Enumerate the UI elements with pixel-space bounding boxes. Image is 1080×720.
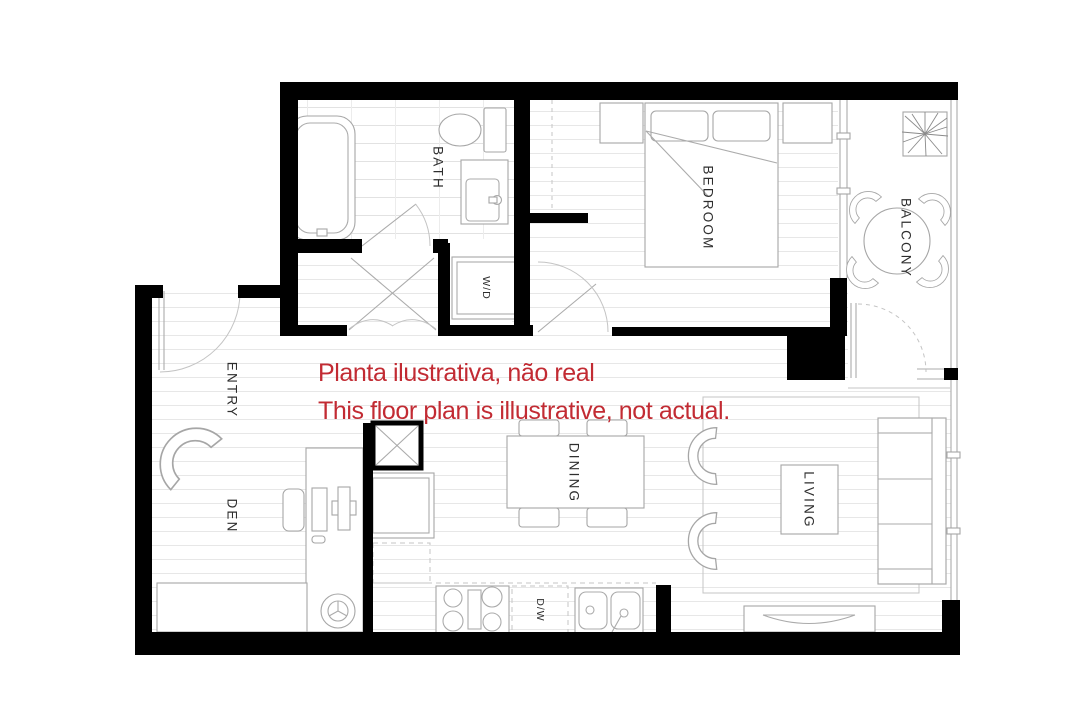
- room-label-balcony: BALCONY: [898, 198, 913, 278]
- desk-mouse: [312, 536, 325, 543]
- room-label-bath: BATH: [430, 146, 445, 190]
- room-label-bedroom: BEDROOM: [700, 165, 715, 250]
- den-cabinet: [157, 583, 307, 632]
- window-mullion: [837, 133, 850, 139]
- wall-bedroom-right: [830, 278, 847, 336]
- room-label-living: LIVING: [801, 471, 816, 528]
- bath-vanity: [461, 160, 508, 224]
- room-label-den: DEN: [224, 498, 239, 533]
- pillow: [713, 111, 770, 141]
- balcony-table: [864, 208, 930, 274]
- wall-left: [135, 285, 152, 655]
- balcony-chair: [919, 186, 959, 226]
- disclaimer-line-1: Planta ilustrativa, não real: [318, 359, 594, 387]
- wall-bottom: [135, 632, 960, 655]
- disclaimer-line-2: This floor plan is illustrative, not act…: [318, 397, 730, 425]
- bathtub: [289, 116, 355, 240]
- pillow: [651, 111, 708, 141]
- desk-monitor: [338, 487, 350, 530]
- floor-plan: BATH BEDROOM BALCONY ENTRY DEN DINING LI…: [0, 0, 1080, 720]
- wall-balcony-post: [944, 368, 958, 380]
- toilet-icon: [439, 114, 481, 146]
- wall-kitchen-living: [656, 585, 671, 633]
- balcony-door-swing: [858, 304, 926, 372]
- kitchen-sink: [575, 588, 643, 633]
- wall-top: [280, 82, 958, 100]
- dining-chair: [519, 508, 559, 527]
- desk-chair: [283, 489, 304, 531]
- tub-faucet: [317, 229, 327, 236]
- wall-hall-bottom: [280, 325, 347, 336]
- window-mullion: [947, 452, 960, 458]
- label-washer-dryer: W/D: [480, 276, 492, 299]
- nightstand-left: [600, 103, 643, 143]
- room-label-entry: ENTRY: [224, 362, 239, 419]
- desk-monitor: [312, 488, 327, 531]
- wall-entry-stub: [238, 285, 298, 298]
- stove: [436, 586, 509, 633]
- tv-console: [744, 606, 875, 632]
- label-dishwasher: D/W: [534, 598, 546, 621]
- room-label-dining: DINING: [566, 443, 581, 503]
- wall-laundry-left: [438, 243, 450, 336]
- wall-bedroom-stub: [530, 213, 588, 223]
- sofa: [878, 418, 946, 584]
- window-mullion: [837, 188, 850, 194]
- dining-chair: [587, 508, 627, 527]
- wall-bath-bottom: [280, 239, 362, 253]
- wall-entry-stub: [135, 285, 163, 298]
- window-mullion: [947, 528, 960, 534]
- wall-bath-right: [514, 97, 530, 335]
- fridge: [368, 473, 434, 538]
- main-floor: [152, 291, 848, 632]
- wall-hall-bottom: [448, 325, 533, 336]
- toilet-tank: [484, 108, 506, 152]
- nightstand-right: [783, 103, 832, 143]
- wall-corner-post: [942, 600, 960, 635]
- wall-pillar: [787, 332, 845, 380]
